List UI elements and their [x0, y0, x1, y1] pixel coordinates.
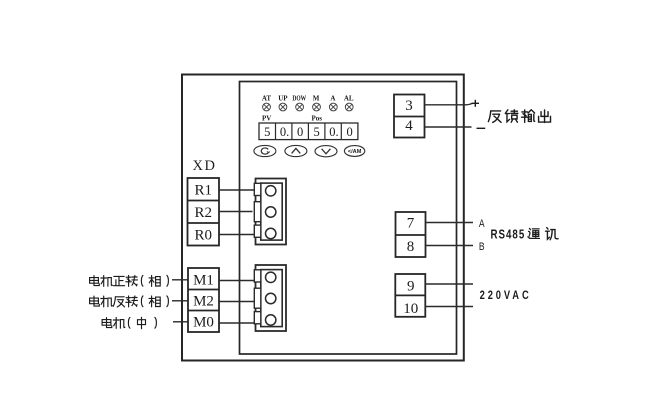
svg-text:RS485: RS485 [490, 228, 525, 241]
svg-text:4: 4 [405, 118, 413, 134]
svg-text:A: A [479, 218, 485, 230]
svg-text:B: B [479, 241, 485, 253]
svg-text:M1: M1 [193, 272, 214, 288]
svg-text:0.: 0. [329, 125, 338, 139]
svg-text:3: 3 [405, 98, 413, 114]
svg-text:0.: 0. [280, 125, 289, 139]
svg-text:8: 8 [407, 239, 415, 255]
svg-text:UP: UP [278, 94, 288, 102]
svg-text:5: 5 [313, 125, 319, 139]
svg-text:R1: R1 [195, 182, 213, 198]
svg-text:AT: AT [262, 94, 272, 102]
svg-text:0: 0 [346, 125, 352, 139]
svg-text:0: 0 [297, 125, 303, 139]
svg-text:Pos: Pos [312, 115, 323, 123]
svg-text:AL: AL [344, 94, 354, 102]
svg-text:PV: PV [262, 115, 271, 123]
svg-text:M2: M2 [193, 293, 214, 309]
svg-text:220VAC: 220VAC [480, 289, 532, 302]
svg-text:7: 7 [407, 215, 415, 231]
svg-text:5: 5 [264, 125, 270, 139]
svg-text:R0: R0 [195, 228, 213, 244]
svg-text:10: 10 [403, 301, 418, 317]
svg-text:M: M [313, 94, 320, 102]
svg-text:XD: XD [193, 158, 217, 174]
svg-text:DOW: DOW [292, 94, 306, 102]
svg-text:9: 9 [407, 278, 415, 294]
svg-text:M0: M0 [193, 315, 214, 331]
svg-text:A: A [330, 94, 335, 102]
svg-text:</AM: </AM [348, 149, 362, 155]
svg-text:R2: R2 [195, 205, 213, 221]
